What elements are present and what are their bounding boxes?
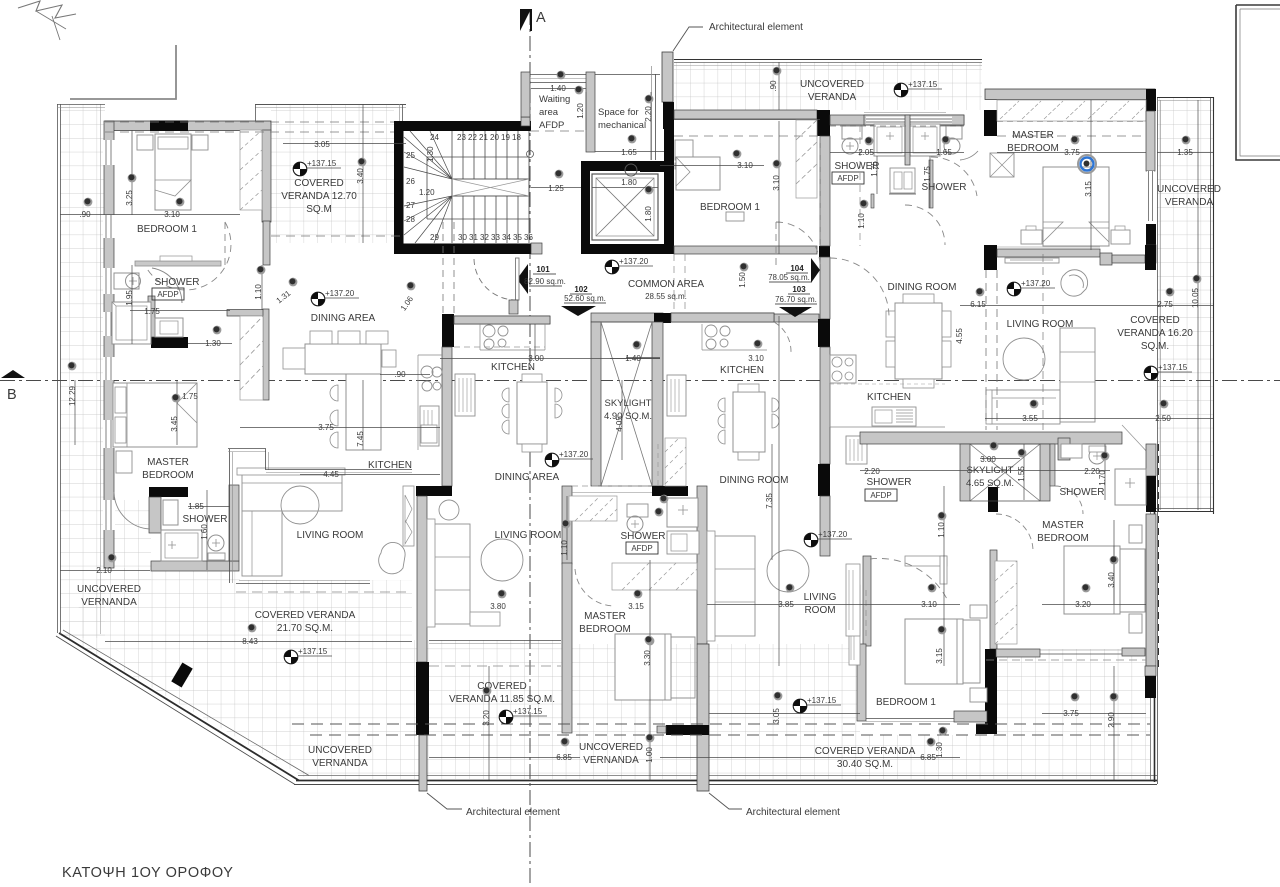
svg-text:UNCOVERED: UNCOVERED bbox=[800, 79, 864, 90]
svg-text:18: 18 bbox=[512, 133, 521, 142]
svg-text:COVERED: COVERED bbox=[1130, 315, 1179, 326]
svg-text:3.15: 3.15 bbox=[935, 648, 944, 664]
svg-text:MASTER: MASTER bbox=[1012, 130, 1054, 141]
svg-text:102: 102 bbox=[574, 285, 588, 294]
svg-text:Architectural element: Architectural element bbox=[709, 22, 803, 33]
svg-text:1.10: 1.10 bbox=[937, 522, 946, 538]
svg-text:3.85: 3.85 bbox=[778, 600, 794, 609]
svg-text:3.00: 3.00 bbox=[980, 455, 996, 464]
svg-text:BEDROOM: BEDROOM bbox=[579, 624, 631, 635]
svg-text:VERANDA: VERANDA bbox=[808, 92, 857, 103]
svg-text:LIVING ROOM: LIVING ROOM bbox=[1007, 319, 1074, 330]
svg-text:21.70 SQ.M.: 21.70 SQ.M. bbox=[277, 623, 333, 634]
svg-text:4.65 SQ.M.: 4.65 SQ.M. bbox=[966, 478, 1014, 489]
svg-text:SQ.M: SQ.M bbox=[306, 204, 332, 215]
svg-text:SHOWER: SHOWER bbox=[621, 531, 666, 542]
svg-text:1.10: 1.10 bbox=[857, 213, 866, 229]
svg-text:2.20: 2.20 bbox=[864, 467, 880, 476]
svg-text:103: 103 bbox=[792, 285, 806, 294]
svg-text:1.85: 1.85 bbox=[188, 502, 204, 511]
svg-text:3.45: 3.45 bbox=[170, 416, 179, 432]
svg-text:3.40: 3.40 bbox=[356, 168, 365, 184]
svg-text:1.75: 1.75 bbox=[182, 392, 198, 401]
svg-text:26: 26 bbox=[406, 177, 415, 186]
svg-text:+137.20: +137.20 bbox=[1021, 279, 1051, 288]
svg-text:ROOM: ROOM bbox=[804, 605, 835, 616]
svg-text:AFDP: AFDP bbox=[870, 491, 891, 500]
svg-text:6.85: 6.85 bbox=[556, 753, 572, 762]
svg-text:1.75: 1.75 bbox=[923, 166, 932, 182]
svg-text:COVERED VERANDA: COVERED VERANDA bbox=[815, 746, 916, 757]
svg-text:78.05 sq.m.: 78.05 sq.m. bbox=[768, 273, 810, 282]
svg-text:DINING ROOM: DINING ROOM bbox=[720, 475, 789, 486]
svg-text:3.05: 3.05 bbox=[772, 708, 781, 724]
svg-text:SKYLIGHT: SKYLIGHT bbox=[605, 398, 652, 409]
svg-text:+137.15: +137.15 bbox=[513, 707, 543, 716]
svg-text:Architectural element: Architectural element bbox=[466, 807, 560, 818]
svg-text:1.40: 1.40 bbox=[625, 354, 641, 363]
svg-text:KITCHEN: KITCHEN bbox=[720, 365, 764, 376]
svg-text:VERANDA 11.85 SQ.M.: VERANDA 11.85 SQ.M. bbox=[449, 694, 555, 705]
svg-text:+137.20: +137.20 bbox=[619, 257, 649, 266]
svg-text:1.50: 1.50 bbox=[738, 272, 747, 288]
svg-text:7.35: 7.35 bbox=[765, 493, 774, 509]
svg-text:2.10: 2.10 bbox=[96, 566, 112, 575]
svg-text:3.05: 3.05 bbox=[314, 140, 330, 149]
svg-text:1.35: 1.35 bbox=[1177, 148, 1193, 157]
svg-text:1.25: 1.25 bbox=[548, 184, 564, 193]
svg-text:COVERED: COVERED bbox=[294, 178, 343, 189]
svg-text:LIVING: LIVING bbox=[804, 592, 837, 603]
svg-text:MASTER: MASTER bbox=[584, 611, 626, 622]
svg-text:34: 34 bbox=[502, 233, 511, 242]
svg-text:4.90 SQ.M.: 4.90 SQ.M. bbox=[604, 411, 652, 422]
svg-text:UNCOVERED: UNCOVERED bbox=[579, 742, 643, 753]
svg-text:3.10: 3.10 bbox=[921, 600, 937, 609]
svg-text:28: 28 bbox=[406, 215, 415, 224]
svg-text:LIVING ROOM: LIVING ROOM bbox=[297, 530, 364, 541]
svg-text:Architectural element: Architectural element bbox=[746, 807, 840, 818]
svg-text:3.10: 3.10 bbox=[772, 175, 781, 191]
svg-text:+137.20: +137.20 bbox=[325, 289, 355, 298]
svg-text:10.05: 10.05 bbox=[1191, 287, 1200, 308]
svg-text:22: 22 bbox=[468, 133, 477, 142]
svg-text:3.10: 3.10 bbox=[748, 354, 764, 363]
svg-text:3.10: 3.10 bbox=[164, 210, 180, 219]
svg-text:2.90: 2.90 bbox=[1107, 712, 1116, 728]
svg-text:BEDROOM: BEDROOM bbox=[1007, 143, 1059, 154]
svg-text:BEDROOM 1: BEDROOM 1 bbox=[137, 224, 197, 235]
svg-text:.90: .90 bbox=[79, 210, 91, 219]
svg-text:ΚΑΤΟΨΗ 1ΟΥ ΟΡΟΦΟΥ: ΚΑΤΟΨΗ 1ΟΥ ΟΡΟΦΟΥ bbox=[62, 865, 234, 881]
svg-text:1.30: 1.30 bbox=[935, 742, 944, 758]
svg-text:3.25: 3.25 bbox=[125, 190, 134, 206]
svg-text:21: 21 bbox=[479, 133, 488, 142]
svg-text:3.15: 3.15 bbox=[628, 602, 644, 611]
svg-text:SQ.M.: SQ.M. bbox=[1141, 341, 1169, 352]
svg-text:1.55: 1.55 bbox=[1017, 466, 1026, 482]
svg-text:Waiting: Waiting bbox=[539, 94, 570, 105]
svg-text:12.29: 12.29 bbox=[68, 385, 77, 406]
svg-text:.90: .90 bbox=[769, 80, 778, 92]
svg-text:4.45: 4.45 bbox=[323, 470, 339, 479]
svg-text:+137.15: +137.15 bbox=[908, 80, 938, 89]
svg-text:VERANDA 16.20: VERANDA 16.20 bbox=[1117, 328, 1193, 339]
svg-text:MASTER: MASTER bbox=[1042, 520, 1084, 531]
svg-text:1.65: 1.65 bbox=[621, 148, 637, 157]
svg-text:31: 31 bbox=[469, 233, 478, 242]
svg-text:LIVING ROOM: LIVING ROOM bbox=[495, 530, 562, 541]
svg-text:32: 32 bbox=[480, 233, 489, 242]
svg-text:3.15: 3.15 bbox=[1084, 181, 1093, 197]
svg-text:Space for: Space for bbox=[598, 107, 639, 118]
svg-text:1.20: 1.20 bbox=[576, 103, 585, 119]
svg-text:COVERED VERANDA: COVERED VERANDA bbox=[255, 610, 356, 621]
svg-text:+137.15: +137.15 bbox=[1158, 363, 1188, 372]
svg-text:KITCHEN: KITCHEN bbox=[491, 362, 535, 373]
svg-text:3.10: 3.10 bbox=[737, 161, 753, 170]
svg-text:1.60: 1.60 bbox=[200, 524, 209, 540]
svg-text:27: 27 bbox=[406, 201, 415, 210]
svg-text:1.80: 1.80 bbox=[621, 178, 637, 187]
svg-text:SHOWER: SHOWER bbox=[835, 161, 880, 172]
svg-text:1.10: 1.10 bbox=[254, 284, 263, 300]
svg-text:2.05: 2.05 bbox=[858, 148, 874, 157]
svg-text:BEDROOM 1: BEDROOM 1 bbox=[700, 202, 760, 213]
svg-text:2.75: 2.75 bbox=[1157, 300, 1173, 309]
svg-text:SKYLIGHT: SKYLIGHT bbox=[967, 465, 1014, 476]
svg-text:52.60 sq.m.: 52.60 sq.m. bbox=[564, 294, 606, 303]
svg-text:3.20: 3.20 bbox=[482, 710, 491, 726]
svg-text:+137.20: +137.20 bbox=[818, 530, 848, 539]
svg-text:30.40 SQ.M.: 30.40 SQ.M. bbox=[837, 759, 893, 770]
svg-text:3.75: 3.75 bbox=[318, 423, 334, 432]
svg-text:1.75: 1.75 bbox=[144, 307, 160, 316]
svg-text:AFDP: AFDP bbox=[631, 544, 652, 553]
svg-text:A: A bbox=[536, 10, 546, 26]
svg-text:DINING AREA: DINING AREA bbox=[311, 313, 376, 324]
svg-text:1.80: 1.80 bbox=[644, 206, 653, 222]
svg-text:VERNANDA: VERNANDA bbox=[312, 758, 368, 769]
svg-text:AFDP: AFDP bbox=[157, 290, 178, 299]
svg-text:VERANDA 12.70: VERANDA 12.70 bbox=[281, 191, 357, 202]
svg-text:.90: .90 bbox=[394, 370, 406, 379]
svg-text:25: 25 bbox=[406, 151, 415, 160]
svg-text:36: 36 bbox=[524, 233, 533, 242]
svg-text:1.30: 1.30 bbox=[426, 146, 435, 162]
svg-text:3.20: 3.20 bbox=[1075, 600, 1091, 609]
svg-text:VERANDA: VERANDA bbox=[1165, 197, 1214, 208]
svg-text:6.15: 6.15 bbox=[970, 300, 986, 309]
svg-text:B: B bbox=[7, 387, 17, 403]
svg-text:1.00: 1.00 bbox=[645, 747, 654, 763]
svg-text:1.10: 1.10 bbox=[560, 540, 569, 556]
svg-text:2.20: 2.20 bbox=[1084, 467, 1100, 476]
svg-text:101: 101 bbox=[536, 265, 550, 274]
svg-text:BEDROOM: BEDROOM bbox=[142, 470, 194, 481]
svg-text:35: 35 bbox=[513, 233, 522, 242]
svg-text:3.80: 3.80 bbox=[490, 602, 506, 611]
svg-text:1.65: 1.65 bbox=[936, 148, 952, 157]
svg-text:SHOWER: SHOWER bbox=[1060, 487, 1105, 498]
svg-text:104: 104 bbox=[790, 264, 804, 273]
svg-text:33: 33 bbox=[491, 233, 500, 242]
svg-text:3.30: 3.30 bbox=[643, 650, 652, 666]
svg-text:82.90 sq.m.: 82.90 sq.m. bbox=[524, 277, 566, 286]
svg-text:8.43: 8.43 bbox=[242, 637, 258, 646]
svg-text:SHOWER: SHOWER bbox=[867, 477, 912, 488]
svg-text:SHOWER: SHOWER bbox=[155, 277, 200, 288]
svg-text:1.40: 1.40 bbox=[550, 84, 566, 93]
svg-text:1.95: 1.95 bbox=[125, 290, 134, 306]
svg-text:28.55 sq.m.: 28.55 sq.m. bbox=[645, 292, 687, 301]
svg-text:SHOWER: SHOWER bbox=[183, 514, 228, 525]
svg-text:AFDP: AFDP bbox=[837, 174, 858, 183]
svg-text:DINING ROOM: DINING ROOM bbox=[888, 282, 957, 293]
svg-text:20: 20 bbox=[490, 133, 499, 142]
svg-text:BEDROOM: BEDROOM bbox=[1037, 533, 1089, 544]
svg-text:+137.15: +137.15 bbox=[307, 159, 337, 168]
svg-text:COMMON AREA: COMMON AREA bbox=[628, 279, 704, 290]
svg-text:VERNANDA: VERNANDA bbox=[81, 597, 137, 608]
svg-text:DINING AREA: DINING AREA bbox=[495, 472, 560, 483]
svg-text:+137.15: +137.15 bbox=[298, 647, 328, 656]
svg-text:3.40: 3.40 bbox=[1107, 572, 1116, 588]
svg-text:area: area bbox=[539, 107, 559, 118]
svg-text:UNCOVERED: UNCOVERED bbox=[308, 745, 372, 756]
svg-text:23: 23 bbox=[457, 133, 466, 142]
svg-text:MASTER: MASTER bbox=[147, 457, 189, 468]
svg-text:UNCOVERED: UNCOVERED bbox=[1157, 184, 1221, 195]
svg-text:mechanical: mechanical bbox=[598, 120, 646, 131]
svg-text:UNCOVERED: UNCOVERED bbox=[77, 584, 141, 595]
svg-text:30: 30 bbox=[458, 233, 467, 242]
svg-text:3.75: 3.75 bbox=[1063, 709, 1079, 718]
svg-text:+137.20: +137.20 bbox=[559, 450, 589, 459]
svg-text:7.45: 7.45 bbox=[356, 431, 365, 447]
svg-text:KITCHEN: KITCHEN bbox=[368, 460, 412, 471]
svg-text:6.85: 6.85 bbox=[920, 753, 936, 762]
svg-text:29: 29 bbox=[430, 233, 439, 242]
svg-text:19: 19 bbox=[501, 133, 510, 142]
svg-text:AFDP: AFDP bbox=[539, 120, 564, 131]
svg-text:76.70 sq.m.: 76.70 sq.m. bbox=[775, 295, 817, 304]
svg-text:1.30: 1.30 bbox=[205, 339, 221, 348]
svg-text:4.55: 4.55 bbox=[955, 328, 964, 344]
svg-text:KITCHEN: KITCHEN bbox=[867, 392, 911, 403]
svg-text:SHOWER: SHOWER bbox=[922, 182, 967, 193]
svg-text:3.55: 3.55 bbox=[1022, 414, 1038, 423]
svg-text:3.75: 3.75 bbox=[1064, 148, 1080, 157]
svg-text:1.20: 1.20 bbox=[419, 188, 435, 197]
svg-text:2.50: 2.50 bbox=[1155, 414, 1171, 423]
svg-text:24: 24 bbox=[430, 133, 439, 142]
svg-text:BEDROOM 1: BEDROOM 1 bbox=[876, 697, 936, 708]
svg-text:+137.15: +137.15 bbox=[807, 696, 837, 705]
svg-text:VERNANDA: VERNANDA bbox=[583, 755, 639, 766]
